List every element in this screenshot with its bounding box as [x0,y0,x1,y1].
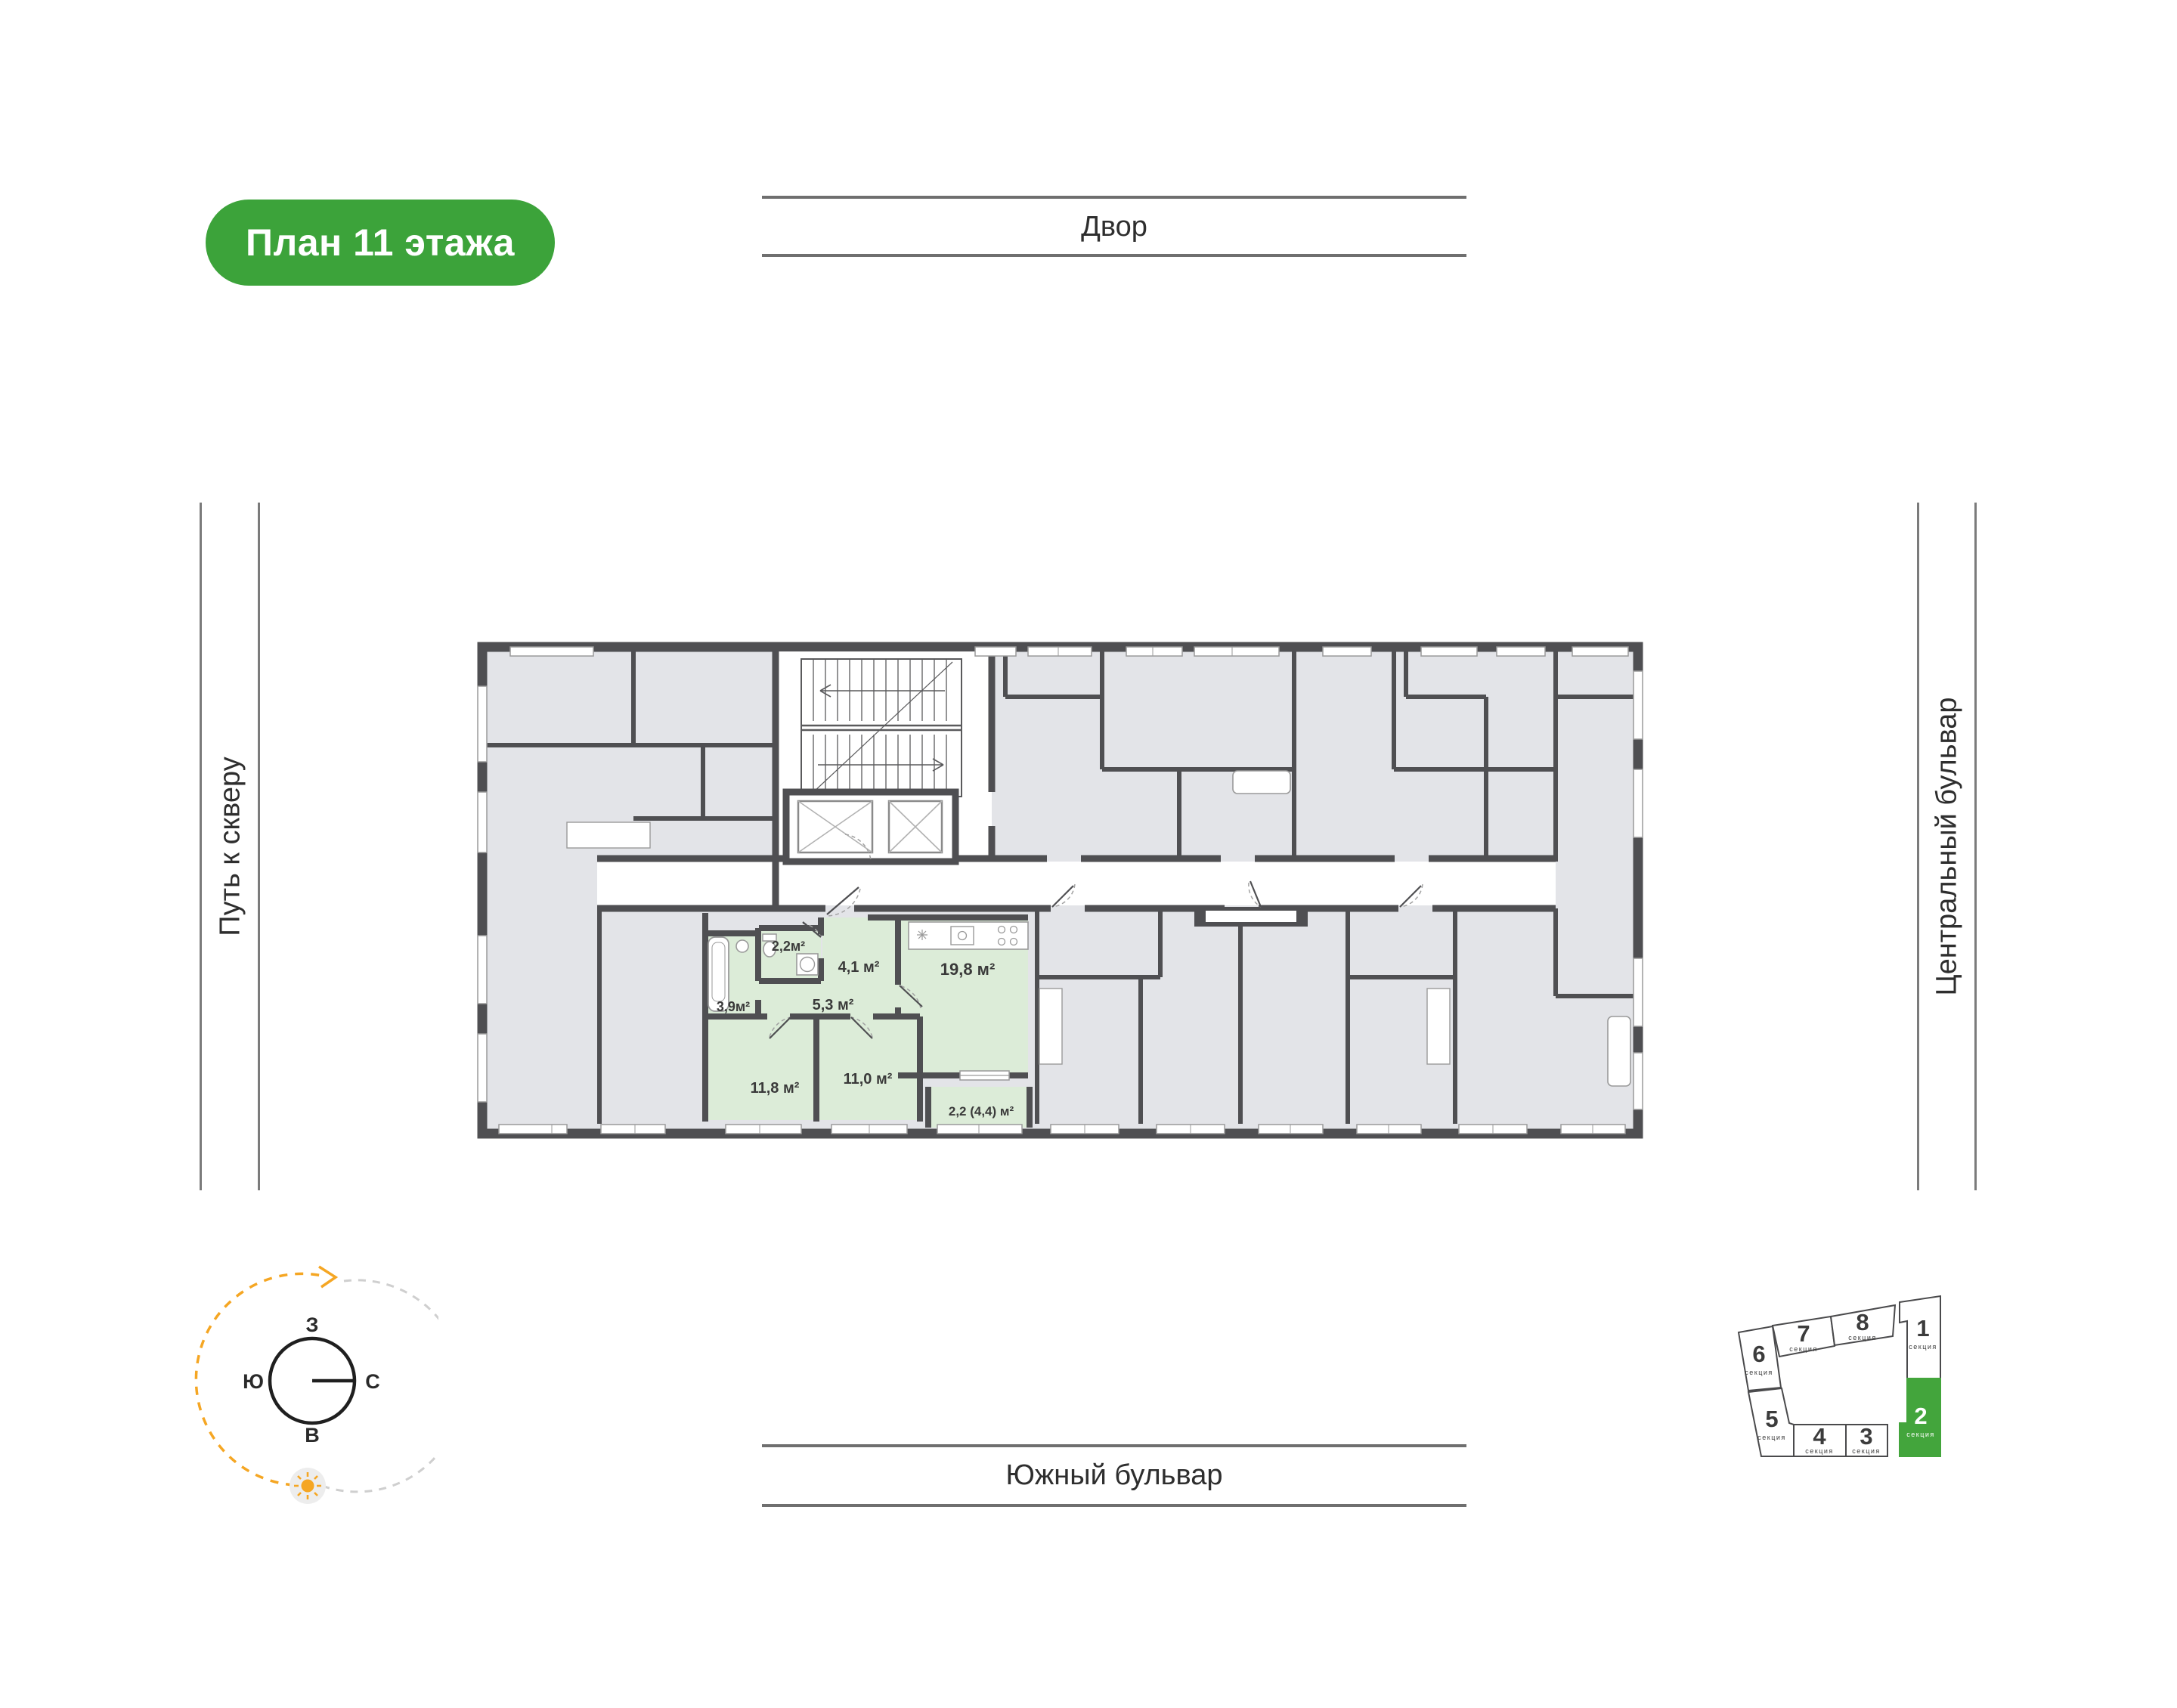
section-number: 6 [1752,1341,1765,1367]
compass-south-label: Ю [243,1370,264,1393]
section-map-item-3[interactable]: 3 секция [1846,1423,1887,1456]
section-number: 3 [1860,1423,1872,1450]
room-area-label: 2,2м² [772,939,805,954]
room-area-label: 5,3 м² [813,997,854,1013]
stove-icon [999,927,1005,933]
kitchen-counter-2 [567,822,650,848]
section-map-item-1[interactable]: 1 секция [1900,1296,1940,1378]
stair-lobby [776,651,992,905]
compass-west-label: З [306,1313,319,1336]
section-label: секция [1789,1345,1818,1353]
bathtub-2-icon [1233,771,1290,794]
compass-north-label: С [365,1370,380,1393]
sun-icon [290,1468,326,1504]
street-line-bottom-2 [762,1504,1466,1507]
compass-east-label: В [305,1424,320,1447]
section-number: 7 [1797,1320,1810,1347]
room-bedroom-2 [819,1016,920,1120]
section-map-item-4[interactable]: 4 секция [1794,1423,1846,1456]
section-map-item-2-active[interactable]: 2 секция [1900,1378,1940,1456]
room-area-label: 11,0 м² [844,1071,893,1088]
street-line-right-1 [1917,503,1919,1190]
corridor-niche [1194,907,1308,927]
corridor [597,862,1556,905]
section-number: 5 [1765,1406,1778,1432]
bathtub-3-icon [1608,1016,1630,1086]
section-label: секция [1909,1343,1937,1351]
street-line-right-2 [1974,503,1977,1190]
street-label-left: Путь к скверу [215,757,247,936]
street-line-bottom-1 [762,1444,1466,1447]
floor-plan: 2,2м² 4,1 м² 19,8 м² 3,9м² 5,3 м² 11,8 м… [476,641,1644,1140]
street-line-top-1 [762,196,1466,199]
section-label: секция [1852,1447,1881,1455]
section-number: 4 [1813,1423,1826,1450]
room-area-label: 3,9м² [717,999,750,1014]
sink-icon [736,940,748,952]
kitchen-strip-1 [1039,989,1062,1064]
section-number: 1 [1916,1315,1929,1341]
room-bedroom-1 [705,1016,814,1120]
section-label: секция [1848,1334,1877,1341]
room-area-label: 11,8 м² [751,1080,800,1097]
fridge-icon [917,930,927,940]
section-label: секция [1757,1434,1786,1441]
street-line-left-2 [258,503,260,1190]
section-label: секция [1906,1431,1935,1438]
section-map: 1 секция 2 секция 3 секция 4 секция 5 се… [1723,1270,1996,1542]
elevators [786,792,955,862]
kitchen-strip-2 [1427,989,1450,1064]
section-number: 2 [1914,1403,1927,1429]
bathtub-inner [712,942,725,1001]
section-map-item-7[interactable]: 7 секция [1773,1317,1835,1357]
street-line-left-1 [200,503,202,1190]
room-area-label: 19,8 м² [940,960,996,979]
section-map-item-8[interactable]: 8 секция [1831,1305,1895,1345]
washer-drum-icon [801,958,815,972]
street-label-right: Центральный бульвар [1931,697,1964,995]
room-area-label: 4,1 м² [838,959,880,976]
section-number: 8 [1856,1309,1869,1335]
section-label: секция [1805,1447,1834,1455]
section-label: секция [1745,1369,1773,1376]
section-map-item-5[interactable]: 5 секция [1748,1388,1794,1456]
sun-path-arrow [319,1267,336,1287]
street-label-bottom: Южный бульвар [762,1451,1466,1499]
room-area-label: 2,2 (4,4) м² [949,1104,1014,1119]
floor-plan-badge: План 11 этажа [206,200,555,286]
compass: З Ю С В [189,1239,438,1542]
street-label-top: Двор [762,203,1466,251]
street-line-top-2 [762,254,1466,257]
balcony-door-window [960,1071,1009,1080]
